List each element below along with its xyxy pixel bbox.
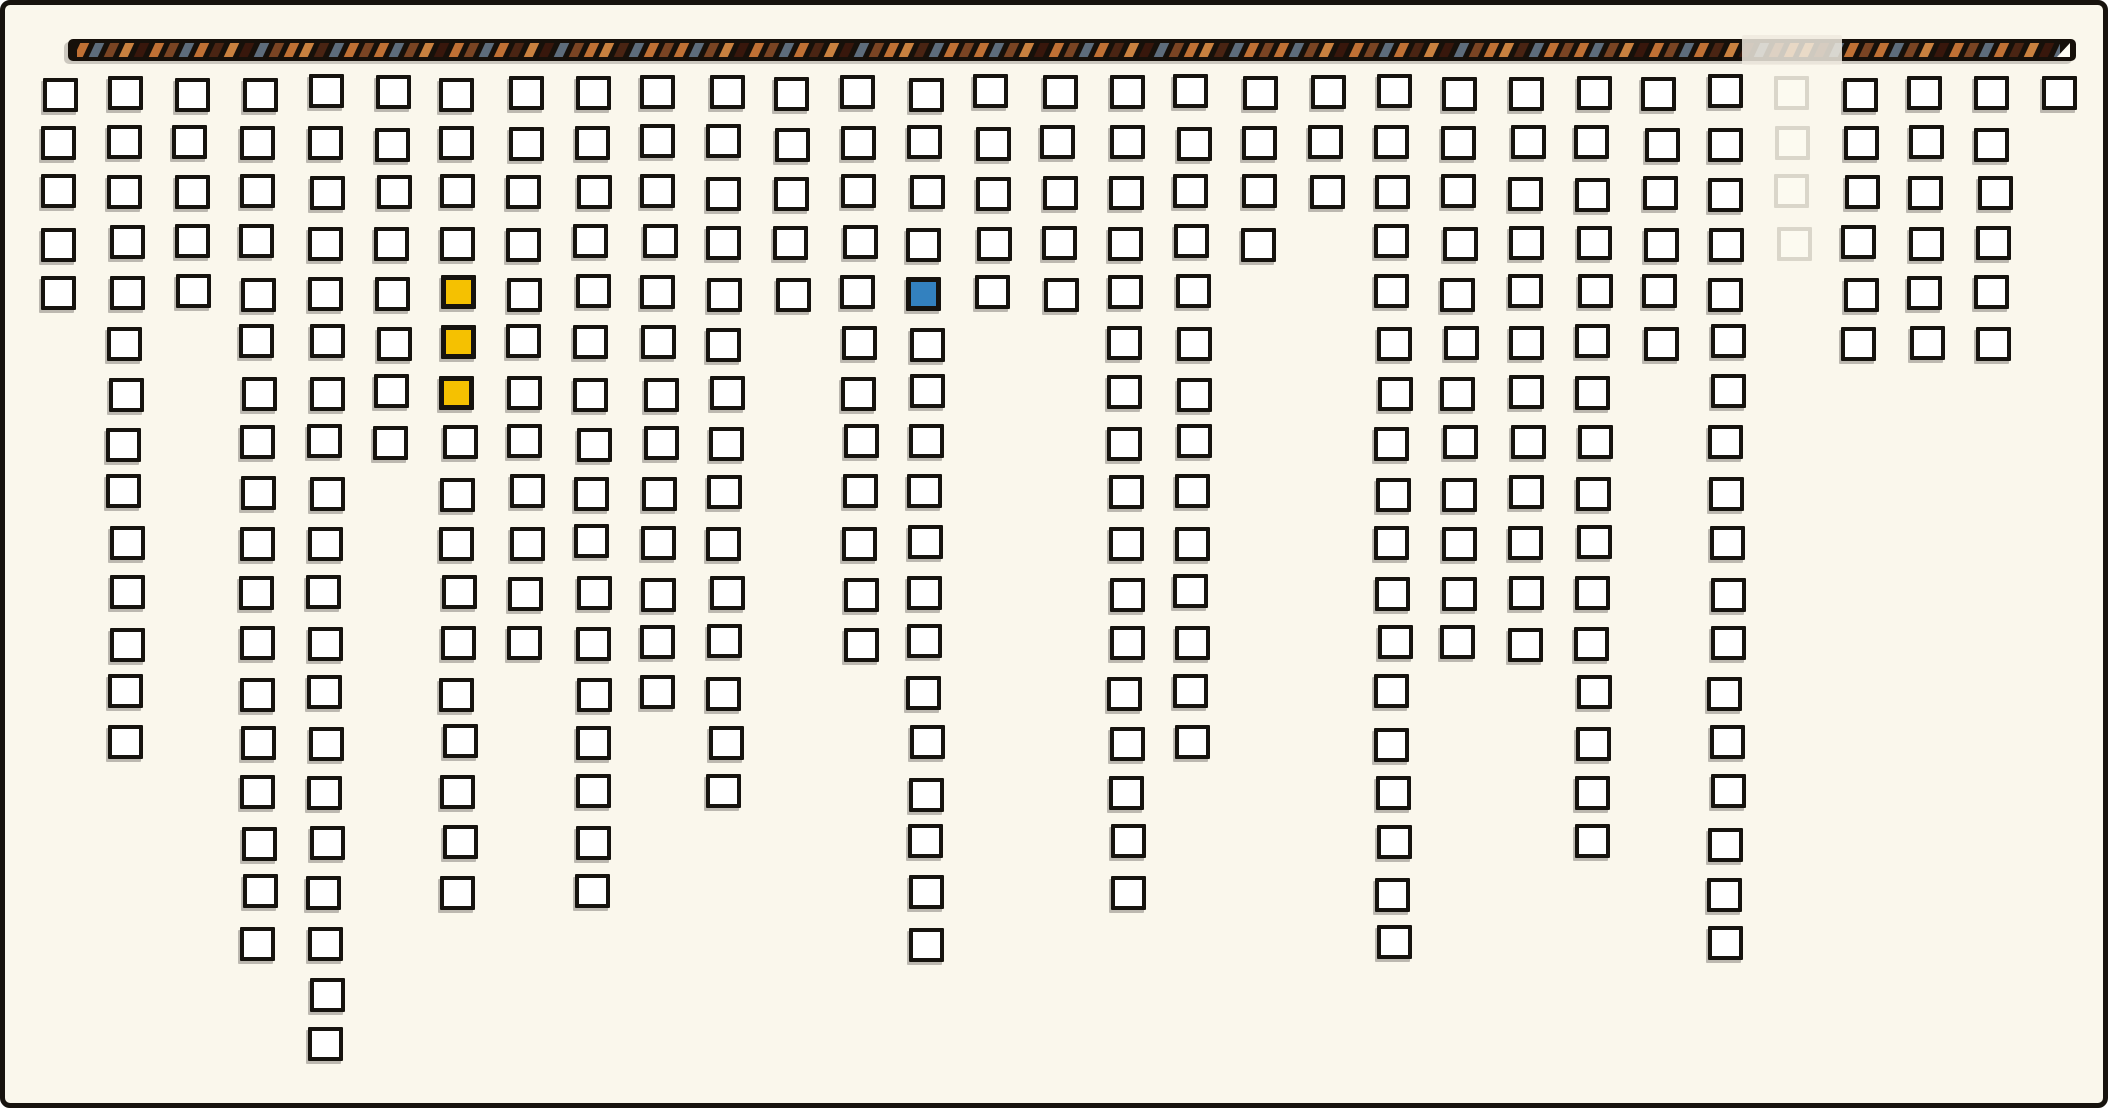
grid-cell-c23-r10[interactable]: [1508, 526, 1543, 560]
grid-cell-c21-r2[interactable]: [1374, 125, 1409, 159]
grid-cell-c2-r6[interactable]: [107, 327, 142, 361]
grid-cell-c9-r10[interactable]: [574, 524, 609, 558]
grid-cell-c23-r3[interactable]: [1508, 177, 1543, 211]
grid-cell-c2-r7[interactable]: [109, 378, 144, 412]
grid-cell-c29-r3[interactable]: [1908, 176, 1943, 210]
grid-cell-c25-r3[interactable]: [1643, 176, 1678, 210]
grid-cell-c13-r8[interactable]: [844, 424, 879, 458]
grid-cell-c3-r4[interactable]: [175, 224, 210, 258]
grid-cell-c8-r6[interactable]: [506, 324, 541, 358]
grid-cell-c17-r2[interactable]: [1110, 125, 1145, 159]
grid-cell-c11-r14[interactable]: [709, 726, 744, 760]
grid-cell-c7-r5-yellow[interactable]: [441, 275, 476, 309]
grid-cell-c29-r1[interactable]: [1907, 76, 1942, 110]
grid-cell-c8-r4[interactable]: [506, 228, 541, 262]
grid-cell-c17-r11[interactable]: [1110, 578, 1145, 612]
grid-cell-c23-r4[interactable]: [1509, 226, 1544, 260]
grid-cell-c17-r13[interactable]: [1107, 677, 1142, 711]
grid-cell-c14-r13[interactable]: [906, 676, 941, 710]
grid-cell-c7-r8[interactable]: [443, 425, 478, 459]
grid-cell-c9-r13[interactable]: [577, 678, 612, 712]
grid-cell-c17-r9[interactable]: [1109, 475, 1144, 509]
grid-cell-c14-r17[interactable]: [909, 875, 944, 909]
grid-cell-c24-r14[interactable]: [1576, 727, 1611, 761]
grid-cell-c15-r5[interactable]: [975, 275, 1010, 309]
grid-cell-c11-r13[interactable]: [706, 677, 741, 711]
grid-cell-c8-r1[interactable]: [509, 76, 544, 110]
grid-cell-c7-r10[interactable]: [439, 527, 474, 561]
grid-cell-c28-r3[interactable]: [1845, 175, 1880, 209]
grid-cell-c24-r5[interactable]: [1578, 274, 1613, 308]
grid-cell-c18-r12[interactable]: [1175, 626, 1210, 660]
grid-cell-c6-r3[interactable]: [377, 175, 412, 209]
grid-cell-c26-r9[interactable]: [1709, 477, 1744, 511]
grid-cell-c28-r2[interactable]: [1844, 126, 1879, 160]
grid-cell-c18-r14[interactable]: [1175, 725, 1210, 759]
grid-cell-c2-r2[interactable]: [107, 125, 142, 159]
grid-cell-c7-r3[interactable]: [440, 174, 475, 208]
grid-cell-c24-r3[interactable]: [1575, 178, 1610, 212]
grid-cell-c30-r3[interactable]: [1978, 176, 2013, 210]
grid-cell-c9-r4[interactable]: [573, 224, 608, 258]
grid-cell-c14-r14[interactable]: [910, 725, 945, 759]
grid-cell-c22-r2[interactable]: [1441, 126, 1476, 160]
grid-cell-c26-r11[interactable]: [1711, 578, 1746, 612]
grid-cell-c1-r2[interactable]: [41, 126, 76, 160]
grid-cell-c24-r8[interactable]: [1578, 425, 1613, 459]
grid-cell-c11-r15[interactable]: [706, 774, 741, 808]
grid-cell-c10-r8[interactable]: [644, 426, 679, 460]
grid-cell-c7-r7-yellow[interactable]: [439, 376, 474, 410]
grid-cell-c21-r11[interactable]: [1375, 577, 1410, 611]
grid-cell-c21-r14[interactable]: [1374, 728, 1409, 762]
grid-cell-c24-r6[interactable]: [1575, 324, 1610, 358]
grid-cell-c5-r18[interactable]: [308, 927, 343, 961]
grid-cell-c4-r17[interactable]: [243, 874, 278, 908]
grid-cell-c24-r12[interactable]: [1574, 627, 1609, 661]
grid-cell-c14-r10[interactable]: [908, 525, 943, 559]
grid-cell-c9-r16[interactable]: [576, 826, 611, 860]
grid-cell-c10-r2[interactable]: [640, 124, 675, 158]
grid-cell-c17-r15[interactable]: [1109, 776, 1144, 810]
grid-cell-c12-r1[interactable]: [774, 77, 809, 111]
grid-cell-c9-r14[interactable]: [576, 726, 611, 760]
grid-cell-c2-r10[interactable]: [110, 526, 145, 560]
grid-cell-c28-r5[interactable]: [1844, 278, 1879, 312]
grid-cell-c8-r2[interactable]: [509, 127, 544, 161]
grid-cell-c3-r2[interactable]: [172, 125, 207, 159]
grid-cell-c3-r3[interactable]: [175, 175, 210, 209]
grid-cell-c7-r2[interactable]: [439, 126, 474, 160]
grid-cell-c30-r2[interactable]: [1974, 128, 2009, 162]
grid-cell-c11-r2[interactable]: [706, 124, 741, 158]
grid-cell-c5-r17[interactable]: [306, 876, 341, 910]
grid-cell-c7-r1[interactable]: [439, 78, 474, 112]
grid-cell-c10-r6[interactable]: [641, 325, 676, 359]
grid-cell-c8-r11[interactable]: [508, 577, 543, 611]
grid-cell-c6-r7[interactable]: [374, 374, 409, 408]
grid-cell-c18-r7[interactable]: [1177, 378, 1212, 412]
grid-cell-c4-r12[interactable]: [240, 626, 275, 660]
grid-cell-c26-r18[interactable]: [1708, 926, 1743, 960]
grid-cell-c10-r11[interactable]: [641, 578, 676, 612]
grid-cell-c16-r2[interactable]: [1040, 125, 1075, 159]
grid-cell-c22-r3[interactable]: [1441, 174, 1476, 208]
grid-cell-c4-r2[interactable]: [240, 126, 275, 160]
grid-cell-c21-r3[interactable]: [1375, 175, 1410, 209]
grid-cell-c4-r13[interactable]: [240, 678, 275, 712]
grid-cell-c26-r3[interactable]: [1708, 178, 1743, 212]
grid-cell-c13-r4[interactable]: [843, 225, 878, 259]
grid-cell-c4-r9[interactable]: [241, 476, 276, 510]
grid-cell-c10-r10[interactable]: [641, 526, 676, 560]
grid-cell-c21-r5[interactable]: [1374, 274, 1409, 308]
grid-cell-c15-r3[interactable]: [976, 177, 1011, 211]
grid-cell-c4-r15[interactable]: [240, 775, 275, 809]
grid-cell-c8-r12[interactable]: [507, 626, 542, 660]
grid-cell-c25-r1[interactable]: [1641, 77, 1676, 111]
grid-cell-c1-r1[interactable]: [43, 78, 78, 112]
grid-cell-c6-r8[interactable]: [373, 426, 408, 460]
grid-cell-c17-r17[interactable]: [1111, 876, 1146, 910]
grid-cell-c14-r3[interactable]: [910, 175, 945, 209]
grid-cell-c26-r7[interactable]: [1711, 374, 1746, 408]
grid-cell-c24-r16[interactable]: [1575, 824, 1610, 858]
grid-cell-c26-r15[interactable]: [1711, 774, 1746, 808]
grid-cell-c14-r15[interactable]: [909, 778, 944, 812]
grid-cell-c18-r11[interactable]: [1173, 574, 1208, 608]
grid-cell-c26-r6[interactable]: [1711, 324, 1746, 358]
grid-cell-c5-r2[interactable]: [308, 126, 343, 160]
grid-cell-c14-r16[interactable]: [908, 824, 943, 858]
grid-cell-c7-r4[interactable]: [440, 227, 475, 261]
grid-cell-c29-r6[interactable]: [1910, 326, 1945, 360]
grid-cell-c5-r10[interactable]: [308, 527, 343, 561]
grid-cell-c24-r13[interactable]: [1577, 675, 1612, 709]
grid-cell-c15-r1[interactable]: [973, 74, 1008, 108]
grid-cell-c6-r2[interactable]: [375, 128, 410, 162]
grid-cell-c4-r3[interactable]: [240, 174, 275, 208]
grid-cell-c26-r13[interactable]: [1707, 677, 1742, 711]
grid-cell-c7-r12[interactable]: [441, 626, 476, 660]
grid-cell-c24-r11[interactable]: [1575, 576, 1610, 610]
grid-cell-c21-r7[interactable]: [1378, 377, 1413, 411]
grid-cell-c23-r12[interactable]: [1508, 628, 1543, 662]
grid-cell-c17-r3[interactable]: [1109, 176, 1144, 210]
grid-cell-c5-r19[interactable]: [310, 978, 345, 1012]
grid-cell-c12-r2[interactable]: [775, 128, 810, 162]
grid-cell-c14-r2[interactable]: [907, 125, 942, 159]
grid-cell-c6-r6[interactable]: [377, 327, 412, 361]
grid-cell-c19-r3[interactable]: [1242, 174, 1277, 208]
grid-cell-c9-r3[interactable]: [577, 175, 612, 209]
grid-cell-c22-r12[interactable]: [1440, 625, 1475, 659]
grid-cell-c5-r8[interactable]: [307, 424, 342, 458]
grid-cell-c5-r12[interactable]: [308, 627, 343, 661]
grid-cell-c13-r5[interactable]: [840, 275, 875, 309]
grid-cell-c13-r11[interactable]: [844, 578, 879, 612]
grid-cell-c20-r1[interactable]: [1311, 75, 1346, 109]
grid-cell-c7-r16[interactable]: [443, 825, 478, 859]
grid-cell-c8-r3[interactable]: [506, 175, 541, 209]
grid-cell-c4-r8[interactable]: [240, 425, 275, 459]
grid-cell-c21-r10[interactable]: [1374, 526, 1409, 560]
grid-cell-c21-r15[interactable]: [1376, 776, 1411, 810]
grid-cell-c21-r12[interactable]: [1378, 625, 1413, 659]
grid-cell-c25-r4[interactable]: [1644, 228, 1679, 262]
grid-cell-c25-r6[interactable]: [1644, 327, 1679, 361]
grid-cell-c11-r3[interactable]: [706, 177, 741, 211]
grid-cell-c22-r1[interactable]: [1442, 77, 1477, 111]
grid-cell-c18-r9[interactable]: [1175, 474, 1210, 508]
grid-cell-c25-r2[interactable]: [1645, 128, 1680, 162]
grid-cell-c13-r7[interactable]: [841, 377, 876, 411]
grid-cell-c7-r14[interactable]: [443, 724, 478, 758]
grid-cell-c23-r9[interactable]: [1509, 475, 1544, 509]
grid-cell-c10-r7[interactable]: [644, 378, 679, 412]
grid-cell-c21-r6[interactable]: [1377, 327, 1412, 361]
grid-cell-c26-r5[interactable]: [1708, 278, 1743, 312]
grid-cell-c16-r3[interactable]: [1043, 176, 1078, 210]
grid-cell-c14-r11[interactable]: [907, 576, 942, 610]
grid-cell-c18-r1[interactable]: [1173, 74, 1208, 108]
grid-cell-c12-r4[interactable]: [773, 226, 808, 260]
grid-cell-c9-r1[interactable]: [576, 76, 611, 110]
grid-cell-c10-r3[interactable]: [640, 174, 675, 208]
grid-cell-c17-r12[interactable]: [1110, 626, 1145, 660]
grid-cell-c5-r15[interactable]: [307, 776, 342, 810]
grid-cell-c18-r10[interactable]: [1175, 527, 1210, 561]
grid-cell-c30-r6[interactable]: [1976, 327, 2011, 361]
grid-cell-c7-r15[interactable]: [440, 775, 475, 809]
grid-cell-c9-r12[interactable]: [576, 627, 611, 661]
grid-cell-c4-r6[interactable]: [239, 324, 274, 358]
grid-cell-c2-r4[interactable]: [110, 225, 145, 259]
grid-cell-c23-r11[interactable]: [1509, 576, 1544, 610]
grid-cell-c23-r5[interactable]: [1508, 274, 1543, 308]
grid-cell-c4-r4[interactable]: [239, 224, 274, 258]
grid-cell-c10-r1[interactable]: [640, 75, 675, 109]
grid-cell-c10-r13[interactable]: [640, 675, 675, 709]
grid-cell-c9-r8[interactable]: [577, 428, 612, 462]
grid-cell-c14-r6[interactable]: [910, 328, 945, 362]
grid-cell-c30-r4[interactable]: [1976, 226, 2011, 260]
grid-cell-c4-r11[interactable]: [239, 576, 274, 610]
grid-cell-c21-r18[interactable]: [1377, 925, 1412, 959]
grid-cell-c10-r12[interactable]: [640, 625, 675, 659]
grid-cell-c18-r2[interactable]: [1177, 127, 1212, 161]
grid-cell-c11-r8[interactable]: [709, 427, 744, 461]
grid-cell-c13-r3[interactable]: [841, 174, 876, 208]
grid-cell-c22-r7[interactable]: [1440, 377, 1475, 411]
grid-cell-c5-r13[interactable]: [307, 675, 342, 709]
grid-cell-c15-r4[interactable]: [977, 227, 1012, 261]
grid-cell-c21-r8[interactable]: [1374, 427, 1409, 461]
grid-cell-c26-r12[interactable]: [1711, 626, 1746, 660]
grid-cell-c5-r3[interactable]: [310, 176, 345, 210]
grid-cell-c17-r14[interactable]: [1110, 727, 1145, 761]
grid-cell-c17-r6[interactable]: [1107, 326, 1142, 360]
grid-cell-c23-r7[interactable]: [1509, 375, 1544, 409]
grid-cell-c16-r4[interactable]: [1042, 226, 1077, 260]
grid-cell-c11-r11[interactable]: [710, 576, 745, 610]
grid-cell-c21-r1[interactable]: [1377, 74, 1412, 108]
grid-cell-c2-r1[interactable]: [108, 76, 143, 110]
grid-cell-c7-r9[interactable]: [440, 478, 475, 512]
grid-cell-c10-r9[interactable]: [642, 477, 677, 511]
grid-cell-c2-r11[interactable]: [110, 575, 145, 609]
grid-cell-c13-r2[interactable]: [841, 126, 876, 160]
grid-cell-c17-r1[interactable]: [1110, 75, 1145, 109]
grid-cell-c24-r15[interactable]: [1575, 776, 1610, 810]
grid-cell-c8-r10[interactable]: [510, 527, 545, 561]
grid-cell-c13-r1[interactable]: [840, 75, 875, 109]
grid-cell-c1-r5[interactable]: [41, 276, 76, 310]
grid-cell-c8-r7[interactable]: [507, 376, 542, 410]
grid-cell-c18-r8[interactable]: [1177, 424, 1212, 458]
grid-cell-c21-r16[interactable]: [1377, 825, 1412, 859]
grid-cell-c24-r10[interactable]: [1577, 525, 1612, 559]
grid-cell-c26-r17[interactable]: [1707, 878, 1742, 912]
grid-cell-c2-r5[interactable]: [110, 276, 145, 310]
grid-cell-c21-r9[interactable]: [1376, 478, 1411, 512]
grid-cell-c9-r9[interactable]: [574, 477, 609, 511]
grid-cell-c5-r4[interactable]: [308, 227, 343, 261]
grid-cell-c22-r5[interactable]: [1440, 278, 1475, 312]
grid-cell-c8-r8[interactable]: [507, 424, 542, 458]
grid-cell-c10-r5[interactable]: [640, 275, 675, 309]
grid-cell-c5-r16[interactable]: [310, 826, 345, 860]
grid-cell-c14-r5-blue[interactable]: [906, 277, 941, 311]
grid-cell-c17-r5[interactable]: [1108, 275, 1143, 309]
grid-cell-c18-r6[interactable]: [1177, 327, 1212, 361]
grid-cell-c23-r1[interactable]: [1509, 77, 1544, 111]
grid-cell-c13-r9[interactable]: [843, 474, 878, 508]
grid-cell-c31-r1[interactable]: [2042, 76, 2077, 110]
grid-cell-c23-r6[interactable]: [1509, 326, 1544, 360]
grid-cell-c7-r13[interactable]: [439, 678, 474, 712]
grid-cell-c22-r11[interactable]: [1442, 577, 1477, 611]
grid-cell-c3-r5[interactable]: [176, 274, 211, 308]
grid-cell-c1-r4[interactable]: [41, 228, 76, 262]
grid-cell-c24-r9[interactable]: [1576, 477, 1611, 511]
grid-cell-c21-r13[interactable]: [1374, 674, 1409, 708]
grid-cell-c11-r4[interactable]: [706, 226, 741, 260]
grid-cell-c4-r1[interactable]: [243, 78, 278, 112]
grid-cell-c14-r9[interactable]: [907, 474, 942, 508]
grid-cell-c7-r6-yellow[interactable]: [441, 325, 476, 359]
grid-cell-c30-r5[interactable]: [1974, 275, 2009, 309]
grid-cell-c17-r16[interactable]: [1111, 824, 1146, 858]
grid-cell-c24-r4[interactable]: [1577, 226, 1612, 260]
grid-cell-c19-r1[interactable]: [1243, 76, 1278, 110]
grid-cell-c24-r2[interactable]: [1574, 125, 1609, 159]
grid-cell-c5-r11[interactable]: [306, 575, 341, 609]
grid-cell-c17-r8[interactable]: [1107, 427, 1142, 461]
grid-cell-c26-r10[interactable]: [1710, 526, 1745, 560]
grid-cell-c16-r5[interactable]: [1044, 278, 1079, 312]
grid-cell-c6-r5[interactable]: [375, 277, 410, 311]
grid-cell-c2-r8[interactable]: [106, 428, 141, 462]
grid-cell-c11-r1[interactable]: [710, 75, 745, 109]
grid-cell-c16-r1[interactable]: [1043, 75, 1078, 109]
grid-cell-c23-r8[interactable]: [1511, 425, 1546, 459]
grid-cell-c23-r2[interactable]: [1511, 125, 1546, 159]
grid-cell-c17-r7[interactable]: [1107, 375, 1142, 409]
grid-cell-c26-r2[interactable]: [1708, 128, 1743, 162]
grid-cell-c4-r7[interactable]: [242, 377, 277, 411]
grid-cell-c9-r17[interactable]: [575, 874, 610, 908]
grid-cell-c22-r8[interactable]: [1443, 425, 1478, 459]
grid-cell-c12-r5[interactable]: [776, 278, 811, 312]
grid-cell-c5-r1[interactable]: [309, 74, 344, 108]
grid-cell-c26-r1[interactable]: [1708, 74, 1743, 108]
grid-cell-c22-r4[interactable]: [1443, 227, 1478, 261]
grid-cell-c30-r1[interactable]: [1974, 76, 2009, 110]
grid-cell-c5-r7[interactable]: [310, 377, 345, 411]
grid-cell-c4-r16[interactable]: [242, 827, 277, 861]
grid-cell-c17-r10[interactable]: [1109, 527, 1144, 561]
grid-cell-c28-r4[interactable]: [1841, 225, 1876, 259]
grid-cell-c12-r3[interactable]: [774, 177, 809, 211]
grid-cell-c29-r5[interactable]: [1907, 276, 1942, 310]
grid-cell-c22-r9[interactable]: [1442, 478, 1477, 512]
grid-cell-c11-r9[interactable]: [707, 475, 742, 509]
grid-cell-c9-r11[interactable]: [577, 576, 612, 610]
grid-cell-c24-r7[interactable]: [1575, 376, 1610, 410]
grid-cell-c2-r14[interactable]: [108, 725, 143, 759]
grid-cell-c26-r8[interactable]: [1708, 425, 1743, 459]
grid-cell-c10-r4[interactable]: [643, 224, 678, 258]
grid-cell-c6-r1[interactable]: [376, 75, 411, 109]
grid-cell-c18-r4[interactable]: [1174, 224, 1209, 258]
grid-cell-c26-r14[interactable]: [1710, 725, 1745, 759]
grid-cell-c19-r4[interactable]: [1241, 228, 1276, 262]
grid-cell-c11-r10[interactable]: [706, 527, 741, 561]
grid-cell-c29-r4[interactable]: [1909, 227, 1944, 261]
grid-cell-c9-r5[interactable]: [576, 274, 611, 308]
grid-cell-c5-r20[interactable]: [308, 1027, 343, 1061]
grid-cell-c26-r4[interactable]: [1709, 228, 1744, 262]
grid-cell-c7-r11[interactable]: [442, 575, 477, 609]
grid-cell-c28-r6[interactable]: [1841, 327, 1876, 361]
grid-cell-c11-r5[interactable]: [707, 278, 742, 312]
grid-cell-c21-r17[interactable]: [1375, 878, 1410, 912]
grid-cell-c25-r5[interactable]: [1642, 274, 1677, 308]
grid-cell-c8-r9[interactable]: [510, 474, 545, 508]
grid-cell-c4-r14[interactable]: [241, 726, 276, 760]
grid-cell-c4-r5[interactable]: [241, 278, 276, 312]
grid-cell-c22-r10[interactable]: [1442, 527, 1477, 561]
grid-cell-c13-r6[interactable]: [842, 326, 877, 360]
grid-cell-c4-r18[interactable]: [240, 927, 275, 961]
grid-cell-c11-r12[interactable]: [707, 624, 742, 658]
grid-cell-c9-r7[interactable]: [573, 378, 608, 412]
grid-cell-c3-r1[interactable]: [175, 78, 210, 112]
grid-cell-c19-r2[interactable]: [1242, 126, 1277, 160]
grid-cell-c14-r8[interactable]: [909, 424, 944, 458]
grid-cell-c20-r2[interactable]: [1308, 125, 1343, 159]
grid-cell-c14-r1[interactable]: [909, 78, 944, 112]
grid-cell-c2-r13[interactable]: [108, 674, 143, 708]
grid-cell-c2-r12[interactable]: [110, 628, 145, 662]
grid-cell-c9-r15[interactable]: [576, 774, 611, 808]
grid-cell-c22-r6[interactable]: [1444, 326, 1479, 360]
grid-cell-c8-r5[interactable]: [507, 278, 542, 312]
grid-cell-c14-r7[interactable]: [910, 374, 945, 408]
grid-cell-c18-r5[interactable]: [1176, 274, 1211, 308]
grid-cell-c13-r12[interactable]: [844, 628, 879, 662]
